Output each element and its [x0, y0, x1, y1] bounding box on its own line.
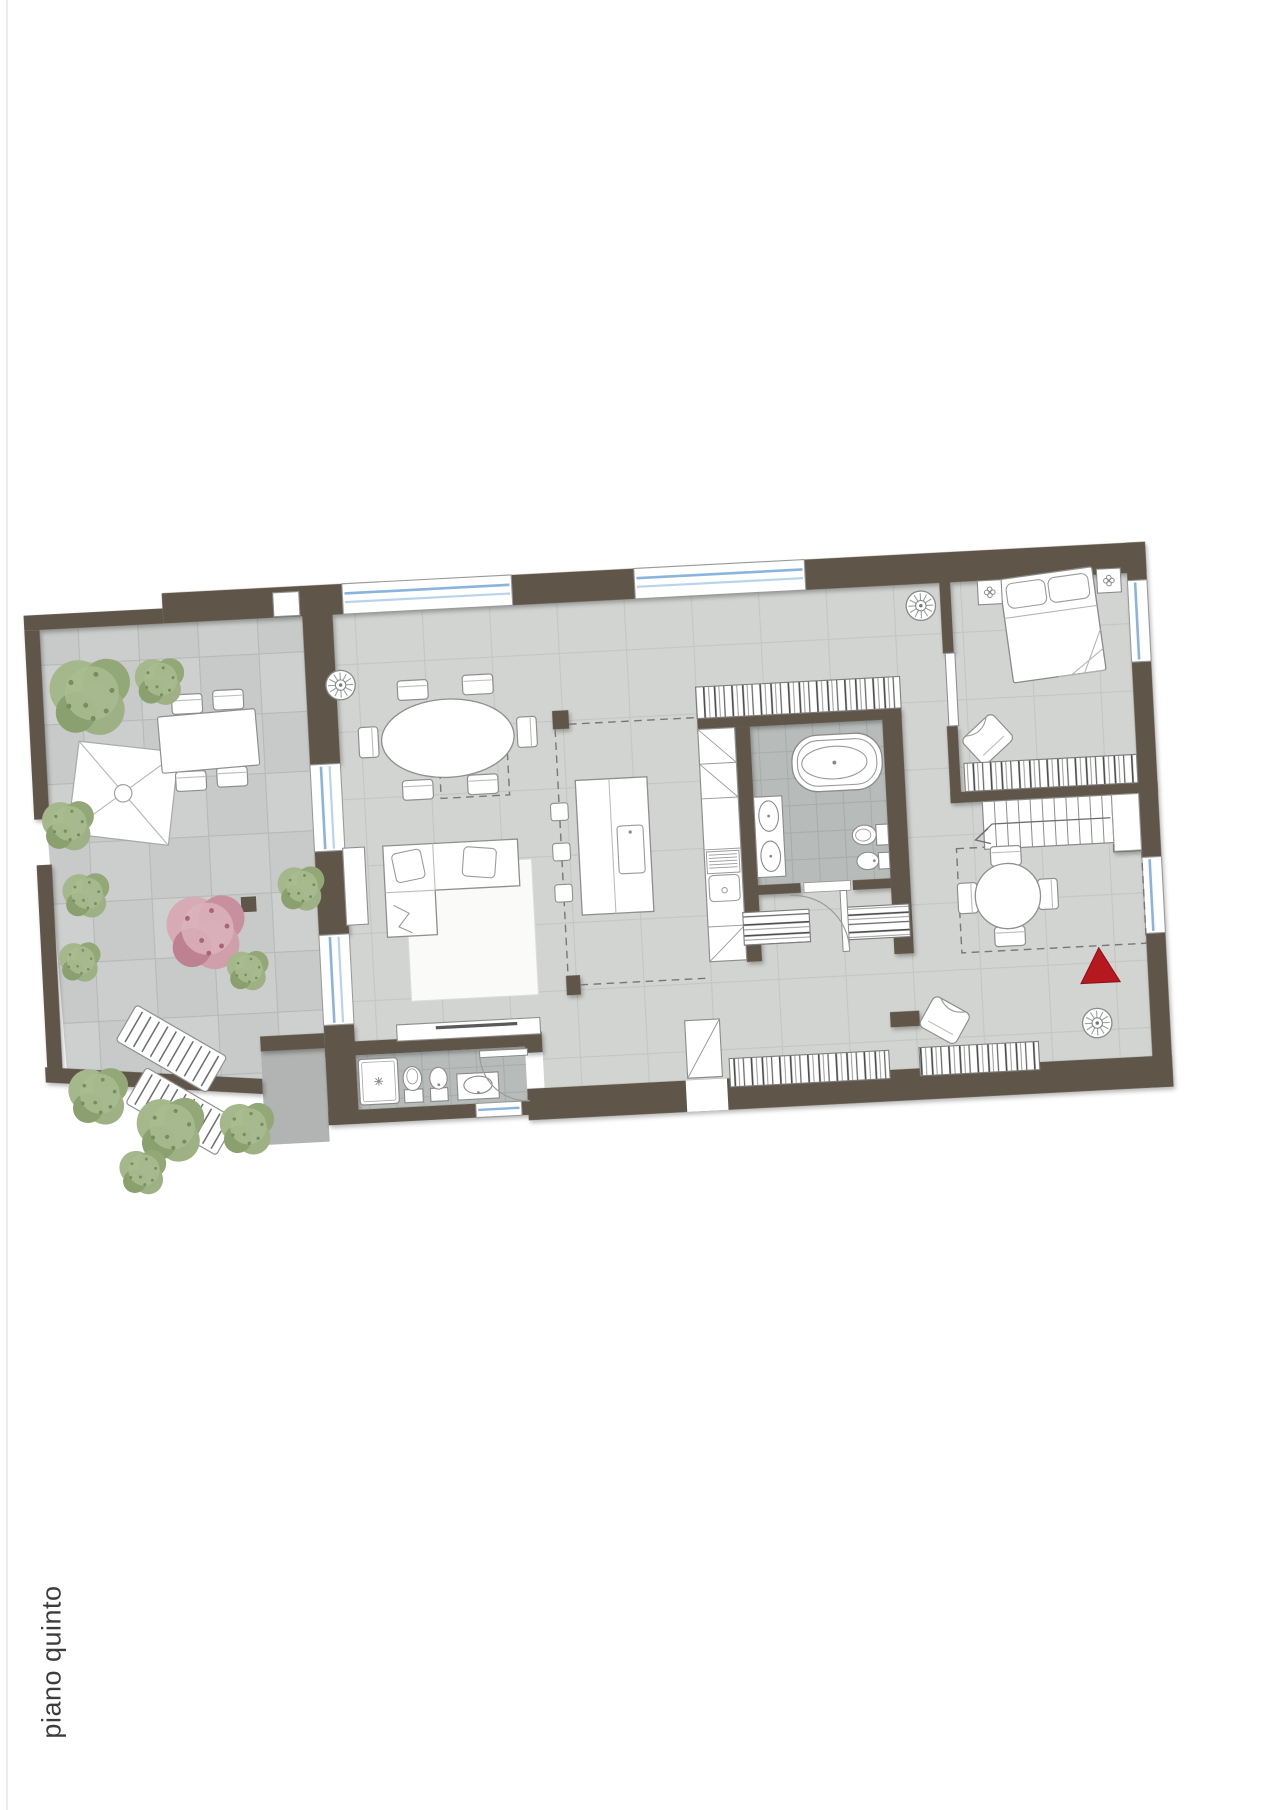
double-bed: [999, 567, 1106, 683]
toilet: [852, 824, 889, 846]
toilet-2: [403, 1066, 424, 1103]
outdoor-table: [157, 709, 259, 774]
wardrobe-right: [843, 904, 911, 940]
sofa-cushion: [462, 846, 497, 878]
side-bench: [343, 847, 369, 925]
lower-roof-slab: [261, 1048, 330, 1145]
kitchen-sink: [706, 850, 741, 902]
shower: [358, 1058, 399, 1106]
entrance-door-leaf: [685, 1019, 723, 1078]
planter: [241, 896, 257, 912]
tree: [119, 1149, 168, 1195]
nightstand-left: [977, 580, 1002, 605]
floor-plan: [13, 486, 1198, 1210]
tree: [219, 1102, 276, 1156]
floor-label: piano quinto: [37, 1585, 68, 1738]
ceiling-fan-bedroom: [905, 590, 936, 621]
bidet-2: [429, 1067, 448, 1102]
window-second-bathroom: [476, 1101, 522, 1117]
sofa-cushion: [391, 848, 426, 883]
wardrobe-left: [743, 909, 811, 945]
window-bedroom-right: [1127, 580, 1151, 662]
page-edge-line: [6, 0, 8, 1810]
window-terrace-upper: [310, 763, 345, 851]
ceiling-fan-hall: [1082, 1008, 1113, 1039]
stair-landing: [1111, 793, 1141, 851]
tree: [67, 1067, 130, 1126]
bathtub: [791, 732, 884, 793]
window-terrace-lower: [319, 934, 354, 1026]
entrance-door-gap: [686, 1078, 729, 1112]
nightstand-right: [1096, 568, 1121, 593]
double-washbasin: [753, 796, 785, 878]
bidet: [857, 851, 890, 870]
hall-sideboard-b: [919, 1041, 1040, 1075]
terrace-corner-pillar: [273, 592, 300, 617]
ceiling-fan-living: [325, 670, 356, 701]
